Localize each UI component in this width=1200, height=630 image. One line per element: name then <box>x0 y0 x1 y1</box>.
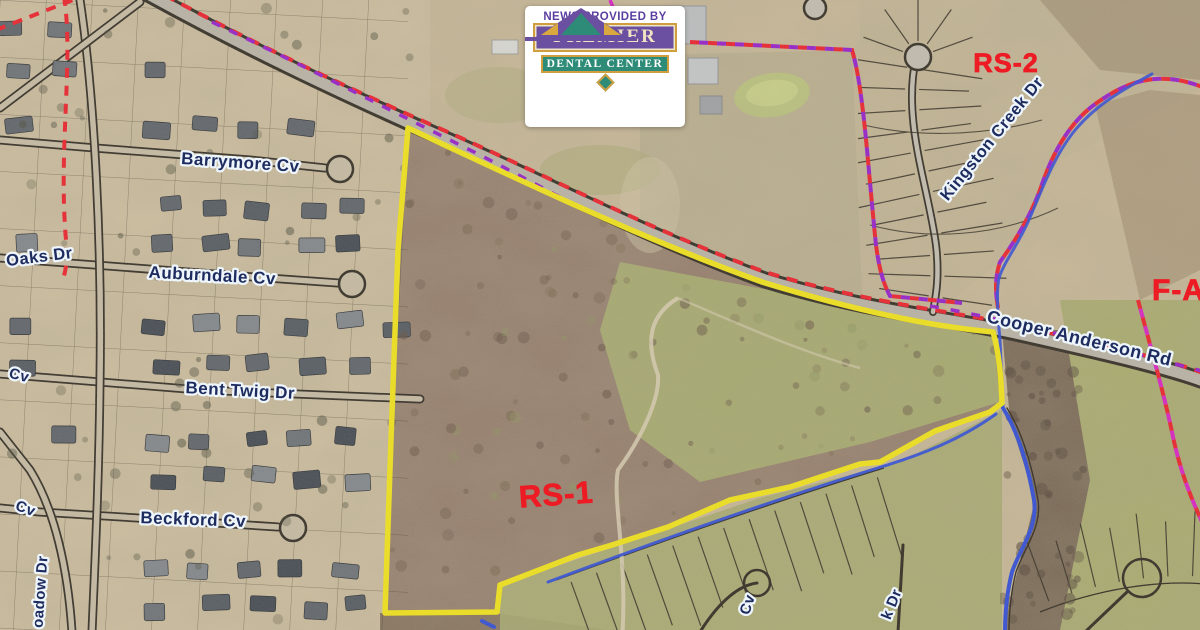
zone-label-rs1: RS-1 <box>518 474 595 514</box>
brand-name-line2: DENTAL CENTER <box>547 58 664 70</box>
dental-center-banner: DENTAL CENTER <box>541 55 669 73</box>
zone-label-fa: F-A- <box>1152 274 1200 307</box>
street-label-beckford: Beckford Cv <box>140 508 246 531</box>
zoning-map-image: Barrymore Cv Oaks Dr Auburndale Cv Bent … <box>0 0 1200 630</box>
zone-label-rs2: RS-2 <box>973 48 1039 78</box>
logo-diamond-icon <box>596 73 614 91</box>
news-provider-card: NEWS PROVIDED BY PREMIER DENTAL CENTER <box>525 6 685 127</box>
premier-roof-logo-icon <box>525 7 637 43</box>
